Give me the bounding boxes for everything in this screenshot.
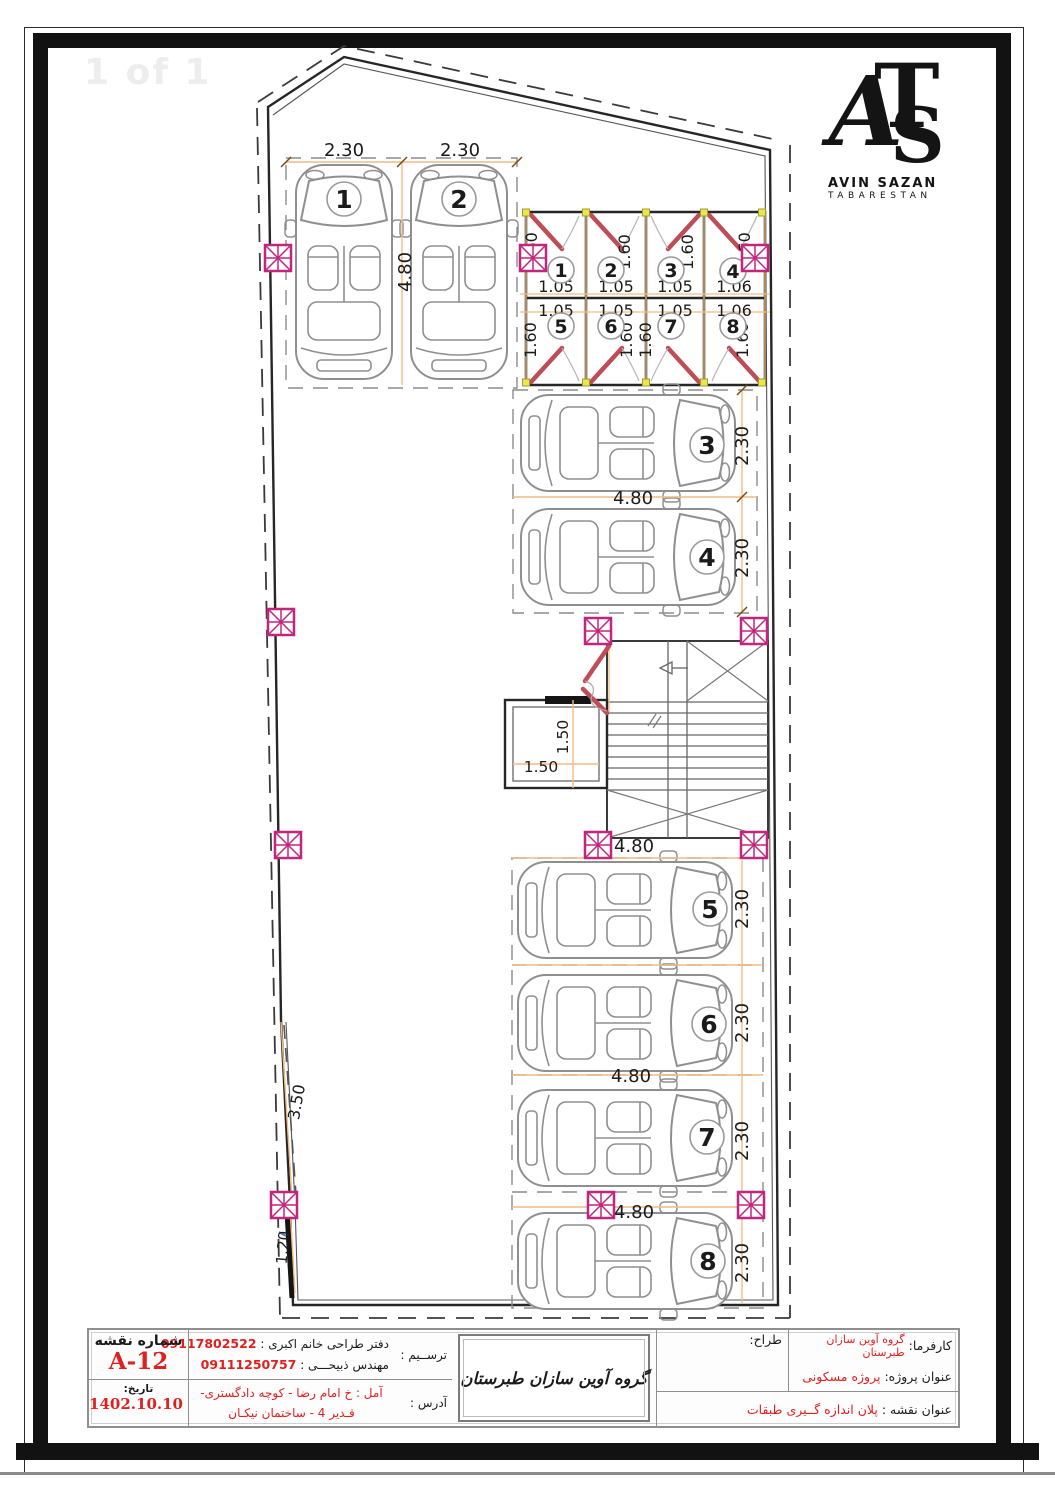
parking-number: 5 xyxy=(701,895,718,924)
dim-label: 1.50 xyxy=(524,758,559,776)
storage-number: 3 xyxy=(664,260,677,282)
column-marker xyxy=(585,832,611,858)
draft-label: ترســیم : xyxy=(400,1348,447,1362)
storage-block xyxy=(520,209,770,386)
dim-label: 2.30 xyxy=(732,1121,753,1161)
column-markers xyxy=(265,245,768,1218)
draft-line2-text: مهندس ذبیحـــی : xyxy=(300,1358,389,1372)
parking-number: 6 xyxy=(700,1010,717,1039)
client-value: گروه آوین سازان طبرستان xyxy=(795,1333,905,1359)
column-marker xyxy=(738,1192,764,1218)
dim-label: 3.50 xyxy=(284,1083,309,1121)
sheet-number-cell: شماره نقشه A-12 xyxy=(89,1330,189,1380)
title-block-left-section: ترســیم : دفتر طراحی خانم اکبری : 091178… xyxy=(89,1330,452,1426)
storage-number: 6 xyxy=(604,316,617,338)
elevator-door xyxy=(545,696,591,704)
designer-label: طراح: xyxy=(749,1332,782,1347)
column-marker xyxy=(520,245,546,271)
dim-label: 4.80 xyxy=(611,1066,651,1087)
draft-label-cell: ترســیم : xyxy=(394,1330,452,1380)
date-label: تاریخ: xyxy=(94,1383,183,1395)
sheet-number-label: شماره نقشه xyxy=(94,1333,183,1349)
draft-cell: دفتر طراحی خانم اکبری : 09117802522 مهند… xyxy=(189,1330,394,1380)
sheet-number-value: A-12 xyxy=(94,1349,183,1374)
designer-cell: طراح: xyxy=(656,1330,788,1391)
project-label: عنوان پروژه: xyxy=(884,1369,952,1384)
date-cell: تاریخ: 1402.10.10 xyxy=(89,1380,189,1427)
column-marker xyxy=(275,832,301,858)
dim-label: 2.30 xyxy=(732,1003,753,1043)
project-cell: عنوان پروژه: پروژه مسکونی xyxy=(788,1361,958,1391)
storage-number: 4 xyxy=(726,261,739,283)
date-value: 1402.10.10 xyxy=(94,1395,183,1413)
dim-label: 1.20 xyxy=(273,1230,294,1265)
company-name: گروه آوین سازان طبرستان xyxy=(460,1369,647,1388)
staircase xyxy=(607,641,768,838)
client-label: کارفرما: xyxy=(909,1338,952,1353)
dim-label: 2.30 xyxy=(440,140,480,161)
parking-number: 8 xyxy=(699,1247,716,1276)
dim-label: 1.60 xyxy=(521,322,540,358)
parking-number: 4 xyxy=(698,543,715,572)
floor-plan: 2.30 2.30 4.80 1.05 1.05 1.05 1.06 1.05 … xyxy=(0,0,1055,1500)
parking-number: 2 xyxy=(450,185,467,214)
map-title-cell: عنوان نقشه : پلان اندازه گــیری طبقات xyxy=(656,1391,958,1426)
address-line1: آمل : خ امام رضا - کوچه دادگستری- xyxy=(194,1383,389,1403)
dim-label: 2.30 xyxy=(324,140,364,161)
address-line2: قـدیر 4 - ساختمان نیکـان xyxy=(194,1403,389,1423)
dim-label: 4.80 xyxy=(613,488,653,509)
drawing-sheet: 1 of 1 A T S AVIN SAZAN TABARESTAN xyxy=(0,0,1055,1500)
map-title-label: عنوان نقشه : xyxy=(882,1402,952,1417)
storage-number: 8 xyxy=(726,316,739,338)
parking-number: 1 xyxy=(335,185,352,214)
stair-direction-arrow xyxy=(660,662,688,674)
column-marker xyxy=(741,618,767,644)
storage-number: 1 xyxy=(554,260,567,282)
column-marker xyxy=(271,1192,297,1218)
draft-line1-text: دفتر طراحی خانم اکبری : xyxy=(260,1337,389,1351)
draft-line2-phone: 09111250757 xyxy=(201,1357,297,1372)
map-title-value: پلان اندازه گــیری طبقات xyxy=(747,1402,878,1417)
storage-number: 7 xyxy=(664,316,677,338)
dim-label: 2.30 xyxy=(732,1243,753,1283)
dim-label: 2.30 xyxy=(732,538,753,578)
client-cell: کارفرما: گروه آوین سازان طبرستان xyxy=(788,1330,958,1361)
dim-label: 4.80 xyxy=(395,252,416,292)
column-marker xyxy=(742,245,768,271)
storage-number: 5 xyxy=(554,316,567,338)
parking-number: 3 xyxy=(698,431,715,460)
address-cell: آمل : خ امام رضا - کوچه دادگستری- قـدیر … xyxy=(189,1380,394,1427)
dim-label: 4.80 xyxy=(614,1202,654,1223)
address-label: آدرس : xyxy=(410,1396,447,1410)
title-block-right-section: کارفرما: گروه آوین سازان طبرستان طراح: ع… xyxy=(656,1330,958,1426)
draft-line1: دفتر طراحی خانم اکبری : 09117802522 xyxy=(194,1333,389,1354)
dim-label: 2.30 xyxy=(732,426,753,466)
column-marker xyxy=(268,609,294,635)
project-value: پروژه مسکونی xyxy=(802,1369,880,1384)
parking-number: 7 xyxy=(698,1123,715,1152)
title-block: کارفرما: گروه آوین سازان طبرستان طراح: ع… xyxy=(87,1328,960,1428)
dim-label: 4.80 xyxy=(614,836,654,857)
address-label-cell: آدرس : xyxy=(394,1380,452,1427)
dim-label: 1.50 xyxy=(554,720,572,755)
draft-line2: مهندس ذبیحـــی : 09111250757 xyxy=(194,1354,389,1375)
dim-label: 2.30 xyxy=(732,889,753,929)
column-marker xyxy=(588,1192,614,1218)
column-marker xyxy=(265,245,291,271)
storage-number: 2 xyxy=(604,260,617,282)
company-name-box: گروه آوین سازان طبرستان xyxy=(458,1334,650,1422)
column-marker xyxy=(585,618,611,644)
dim-label: 1.60 xyxy=(636,322,655,358)
column-marker xyxy=(741,832,767,858)
